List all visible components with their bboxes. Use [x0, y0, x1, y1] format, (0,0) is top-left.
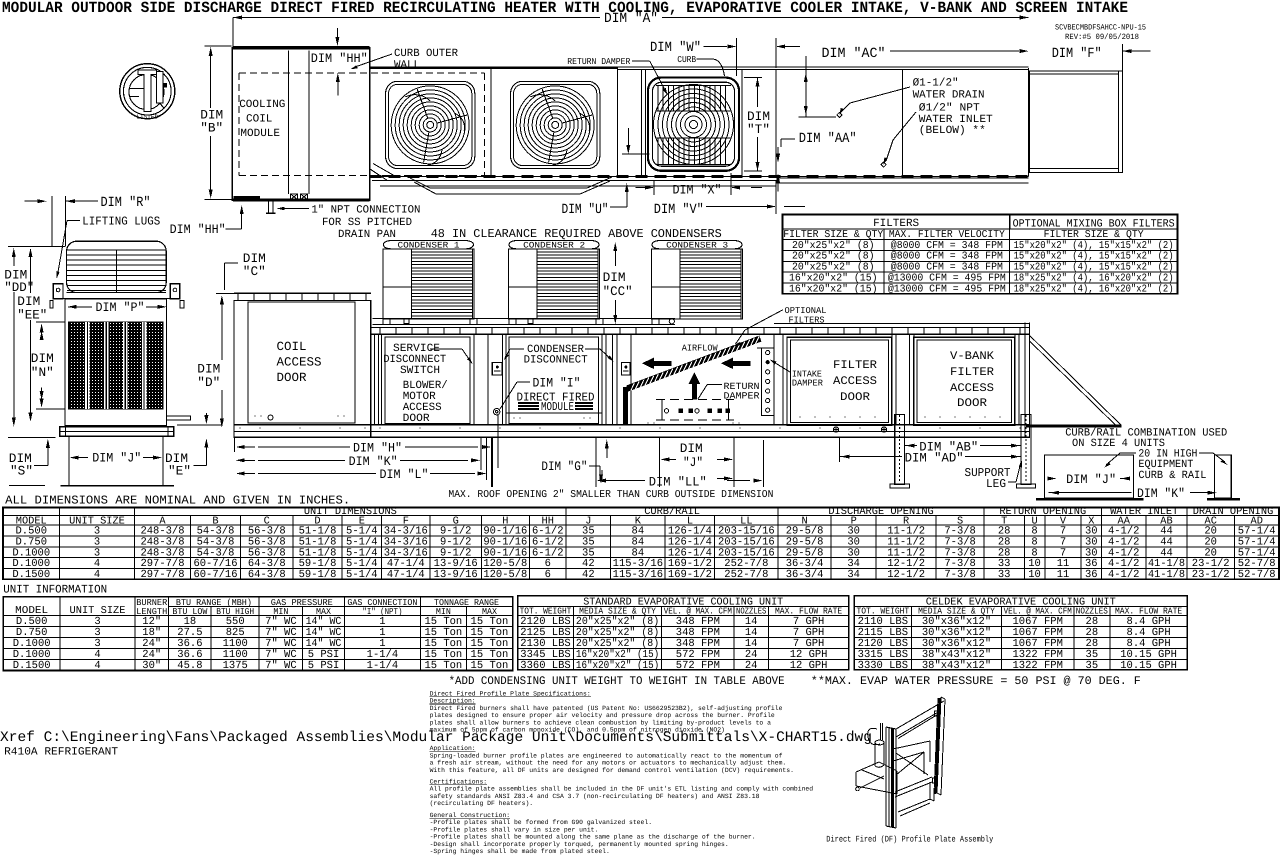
- svg-text:OPTIONAL: OPTIONAL: [785, 306, 827, 316]
- svg-text:plates shall allow burners to: plates shall allow burners to achieve cl…: [430, 719, 771, 726]
- svg-text:3330 LBS: 3330 LBS: [858, 660, 908, 672]
- svg-text:DIM ″G″: DIM ″G″: [541, 459, 587, 474]
- svg-text:-Spring hinges shall be made f: -Spring hinges shall be made from plated…: [430, 848, 610, 855]
- svg-text:DIM: DIM: [680, 441, 703, 456]
- svg-text:7-3/8: 7-3/8: [944, 569, 976, 581]
- svg-text:″DD″: ″DD″: [4, 280, 34, 295]
- svg-text:Direct Fired (DF) Profile Plat: Direct Fired (DF) Profile Plate Assembly: [826, 835, 993, 845]
- svg-text:DIM ″I″: DIM ″I″: [533, 376, 581, 391]
- svg-text:DOOR: DOOR: [403, 413, 430, 425]
- svg-text:30″: 30″: [142, 660, 161, 672]
- svg-text:DISCHARGE OPENING: DISCHARGE OPENING: [828, 506, 933, 518]
- svg-text:DISCONNECT: DISCONNECT: [524, 355, 588, 367]
- svg-text:DIM ″AA″: DIM ″AA″: [799, 131, 857, 147]
- svg-text:″J″: ″J″: [683, 455, 703, 470]
- svg-text:47-1/4: 47-1/4: [387, 569, 425, 581]
- svg-text:18″x25″x2″ (4), 16″x20″x2″ (2): 18″x25″x2″ (4), 16″x20″x2″ (2): [1014, 283, 1174, 295]
- svg-text:FILTER: FILTER: [950, 366, 994, 379]
- svg-text:MODULE: MODULE: [240, 128, 280, 140]
- svg-text:D.1500: D.1500: [12, 569, 50, 581]
- svg-text:″B″: ″B″: [200, 121, 223, 136]
- svg-text:″T″: ″T″: [747, 122, 770, 137]
- svg-text:64-3/8: 64-3/8: [248, 569, 286, 581]
- svg-text:MAX. ROOF OPENING 2″ SMALLER T: MAX. ROOF OPENING 2″ SMALLER THAN CURB O…: [448, 489, 773, 501]
- svg-text:FILTER: FILTER: [833, 359, 877, 372]
- svg-text:13-9/16: 13-9/16: [434, 569, 478, 581]
- svg-text:SWITCH: SWITCH: [400, 365, 440, 377]
- svg-text:WATER INLET: WATER INLET: [919, 114, 993, 126]
- svg-text:5 PSI: 5 PSI: [308, 660, 340, 672]
- svg-text:1322 FPM: 1322 FPM: [1013, 660, 1063, 672]
- svg-text:3360 LBS: 3360 LBS: [520, 660, 570, 672]
- svg-text:ACCESS: ACCESS: [833, 375, 877, 388]
- svg-text:4: 4: [94, 660, 100, 672]
- svg-text:DIM ″AC″: DIM ″AC″: [822, 46, 886, 62]
- svg-text:169-1/2: 169-1/2: [668, 569, 712, 581]
- svg-text:60-7/16: 60-7/16: [193, 569, 237, 581]
- svg-text:Direct Fired burners shall hav: Direct Fired burners shall have patented…: [430, 705, 783, 712]
- svg-text:12-1/2: 12-1/2: [887, 569, 925, 581]
- svg-text:**MAX. EVAP WATER PRESSURE = 5: **MAX. EVAP WATER PRESSURE = 50 PSI @ 70…: [811, 675, 1141, 688]
- svg-text:″CC″: ″CC″: [603, 284, 633, 299]
- svg-text:All profile plate assemblies s: All profile plate assemblies shall be in…: [430, 786, 814, 793]
- svg-text:DIM ″LL″: DIM ″LL″: [649, 475, 707, 490]
- svg-text:15 Ton: 15 Ton: [424, 660, 462, 672]
- svg-text:*ADD CONDENSING UNIT WEIGHT TO: *ADD CONDENSING UNIT WEIGHT TO WEIGHT IN…: [449, 675, 785, 688]
- svg-text:42: 42: [582, 569, 595, 581]
- svg-text:″S″: ″S″: [10, 464, 33, 479]
- svg-text:36-3/4: 36-3/4: [786, 569, 824, 581]
- svg-text:(recirculating DF heaters).: (recirculating DF heaters).: [430, 800, 534, 807]
- svg-text:R410A REFRIGERANT: R410A REFRIGERANT: [4, 747, 118, 759]
- svg-text:COIL: COIL: [277, 340, 307, 354]
- svg-text:DIM ″X″: DIM ″X″: [673, 183, 722, 198]
- svg-text:DIM ″J″: DIM ″J″: [92, 451, 141, 466]
- svg-text:DOOR: DOOR: [957, 397, 987, 410]
- svg-text:safety standards ANSI Z83.4 an: safety standards ANSI Z83.4 and CSA 3.7 …: [430, 793, 760, 800]
- svg-text:D.1500: D.1500: [13, 660, 51, 672]
- svg-text:LISTED: LISTED: [136, 114, 158, 121]
- svg-text:ACCESS: ACCESS: [277, 356, 322, 370]
- svg-text:UNIT INFORMATION: UNIT INFORMATION: [3, 584, 107, 597]
- svg-text:DIM ″A″: DIM ″A″: [604, 11, 658, 27]
- svg-text:V-BANK: V-BANK: [950, 350, 994, 363]
- svg-text:DOOR: DOOR: [277, 371, 308, 385]
- svg-text:DIM ″HH″: DIM ″HH″: [170, 222, 226, 237]
- svg-text:DOOR: DOOR: [840, 391, 870, 404]
- svg-text:DIM ″P″: DIM ″P″: [96, 300, 145, 315]
- svg-text:maximum of 5ppm of carbon mono: maximum of 5ppm of carbon monoxide (CO),…: [430, 727, 725, 734]
- svg-text:24: 24: [745, 660, 758, 672]
- svg-text:COIL: COIL: [246, 114, 272, 126]
- svg-text:MODULAR OUTDOOR SIDE DISCHARGE: MODULAR OUTDOOR SIDE DISCHARGE DIRECT FI…: [2, 0, 1128, 17]
- svg-text:DIM ″W″: DIM ″W″: [650, 40, 701, 56]
- svg-text:a fresh air stream, without th: a fresh air stream, without the need for…: [430, 760, 787, 767]
- svg-text:WATER DRAIN: WATER DRAIN: [913, 90, 985, 102]
- svg-text:DIM ″HH″: DIM ″HH″: [311, 51, 368, 66]
- svg-text:35: 35: [1086, 660, 1099, 672]
- svg-text:RETURN DAMPER: RETURN DAMPER: [567, 57, 631, 67]
- svg-text:16″x20″x2″ (15): 16″x20″x2″ (15): [576, 660, 659, 672]
- svg-text:10: 10: [1028, 569, 1041, 581]
- svg-text:48 IN CLEARANCE REQUIRED ABOVE: 48 IN CLEARANCE REQUIRED ABOVE CONDENSER…: [431, 227, 722, 241]
- svg-text:38″x43″x12″: 38″x43″x12″: [922, 660, 991, 672]
- svg-text:DAMPER: DAMPER: [792, 379, 824, 389]
- svg-text:LEG: LEG: [986, 477, 1006, 491]
- svg-text:DIM ″J″: DIM ″J″: [1066, 472, 1116, 487]
- svg-text:Ø1-1/2″: Ø1-1/2″: [913, 78, 959, 90]
- svg-text:6: 6: [545, 569, 551, 581]
- svg-text:ALL DIMENSIONS ARE NOMINAL AND: ALL DIMENSIONS ARE NOMINAL AND GIVEN IN …: [5, 494, 350, 508]
- svg-text:@13000 CFM = 495 FPM: @13000 CFM = 495 FPM: [888, 283, 1006, 295]
- svg-text:115-3/16: 115-3/16: [613, 569, 663, 581]
- svg-text:1″ NPT CONNECTION: 1″ NPT CONNECTION: [311, 205, 420, 217]
- svg-text:DIM ″R″: DIM ″R″: [101, 195, 151, 211]
- svg-text:33: 33: [998, 569, 1011, 581]
- svg-text:plates designed to ensure prop: plates designed to ensure proper air vel…: [430, 712, 775, 719]
- svg-text:CURB OUTER: CURB OUTER: [394, 48, 458, 60]
- svg-text:52-7/8: 52-7/8: [1238, 569, 1276, 581]
- svg-text:″E″: ″E″: [168, 464, 191, 479]
- svg-text:1375: 1375: [223, 660, 248, 672]
- svg-text:DIM ″V″: DIM ″V″: [654, 202, 704, 218]
- svg-text:REV:#5 09/05/2018: REV:#5 09/05/2018: [1065, 33, 1139, 42]
- svg-text:DIM: DIM: [31, 351, 54, 366]
- svg-text:FILTERS: FILTERS: [789, 316, 825, 326]
- svg-text:-Profile plates shall be forme: -Profile plates shall be formed from G90…: [430, 819, 652, 826]
- svg-text:″N″: ″N″: [31, 365, 54, 380]
- svg-text:41-1/8: 41-1/8: [1148, 569, 1185, 581]
- svg-text:5-1/4: 5-1/4: [346, 569, 378, 581]
- svg-text:MODEL: MODEL: [15, 605, 48, 617]
- svg-text:″D″: ″D″: [197, 375, 220, 390]
- svg-text:DIM ″K″: DIM ″K″: [1137, 486, 1185, 501]
- svg-text:LIFTING LUGS: LIFTING LUGS: [82, 215, 160, 229]
- svg-text:WALL: WALL: [394, 60, 420, 72]
- svg-text:(BELOW) **: (BELOW) **: [919, 125, 986, 137]
- svg-text:7″ WC: 7″ WC: [265, 660, 297, 672]
- svg-text:ACCESS: ACCESS: [950, 382, 994, 395]
- svg-text:DIM ″U″: DIM ″U″: [562, 202, 609, 218]
- svg-text:MODULE: MODULE: [541, 400, 574, 414]
- svg-text:CURB: CURB: [677, 55, 697, 65]
- svg-text:Spring-loaded burner profile p: Spring-loaded burner profile plates are …: [430, 753, 783, 760]
- svg-text:CURB & RAIL: CURB & RAIL: [1138, 470, 1206, 482]
- svg-text:16″x20″x2″ (15): 16″x20″x2″ (15): [789, 283, 878, 295]
- svg-text:252-7/8: 252-7/8: [724, 569, 768, 581]
- svg-text:″C″: ″C″: [243, 264, 266, 279]
- svg-text:36: 36: [1085, 569, 1098, 581]
- svg-text:4-1/2: 4-1/2: [1108, 569, 1140, 581]
- svg-text:1-1/4: 1-1/4: [367, 660, 399, 672]
- svg-text:59-1/8: 59-1/8: [299, 569, 337, 581]
- svg-text:12 GPH: 12 GPH: [790, 660, 828, 672]
- svg-text:34: 34: [847, 569, 860, 581]
- svg-text:Ø1/2″ NPT: Ø1/2″ NPT: [919, 103, 980, 115]
- svg-text:11: 11: [1057, 569, 1070, 581]
- svg-text:DIM: DIM: [603, 270, 626, 285]
- svg-text:120-5/8: 120-5/8: [483, 569, 527, 581]
- svg-text:AIRFLOW: AIRFLOW: [682, 344, 719, 354]
- svg-text:UNIT SIZE: UNIT SIZE: [70, 605, 126, 617]
- svg-text:10.15 GPH: 10.15 GPH: [1120, 660, 1177, 672]
- svg-text:SCVBECMBDFSAHCC-NPU-15: SCVBECMBDFSAHCC-NPU-15: [1055, 24, 1146, 33]
- svg-text:DIM ″F″: DIM ″F″: [1052, 46, 1102, 62]
- svg-text:45.8: 45.8: [177, 660, 202, 672]
- svg-text:-Profile plates shall vary in: -Profile plates shall vary in size per u…: [430, 826, 599, 833]
- svg-text:4: 4: [94, 569, 100, 581]
- svg-text:-Profile plates shall be mount: -Profile plates shall be mounted along t…: [430, 834, 756, 841]
- svg-text:297-7/8: 297-7/8: [140, 569, 184, 581]
- svg-text:572 FPM: 572 FPM: [676, 660, 720, 672]
- svg-text:RETURN OPENING: RETURN OPENING: [999, 506, 1086, 518]
- svg-text:With this feature, all DF unit: With this feature, all DF units are desi…: [430, 767, 794, 774]
- svg-text:DIM ″AD″: DIM ″AD″: [905, 451, 964, 466]
- svg-text:COOLING: COOLING: [239, 99, 285, 111]
- svg-text:FOR SS PITCHED: FOR SS PITCHED: [322, 217, 412, 229]
- svg-text:DRAIN PAN: DRAIN PAN: [338, 229, 396, 241]
- svg-text:15 Ton: 15 Ton: [471, 660, 509, 672]
- svg-text:DIM ″L″: DIM ″L″: [380, 467, 429, 482]
- svg-text:″EE″: ″EE″: [17, 308, 47, 323]
- svg-text:-Design shall incorporate prop: -Design shall incorporate properly torqu…: [430, 841, 729, 848]
- svg-text:23-1/2: 23-1/2: [1192, 569, 1230, 581]
